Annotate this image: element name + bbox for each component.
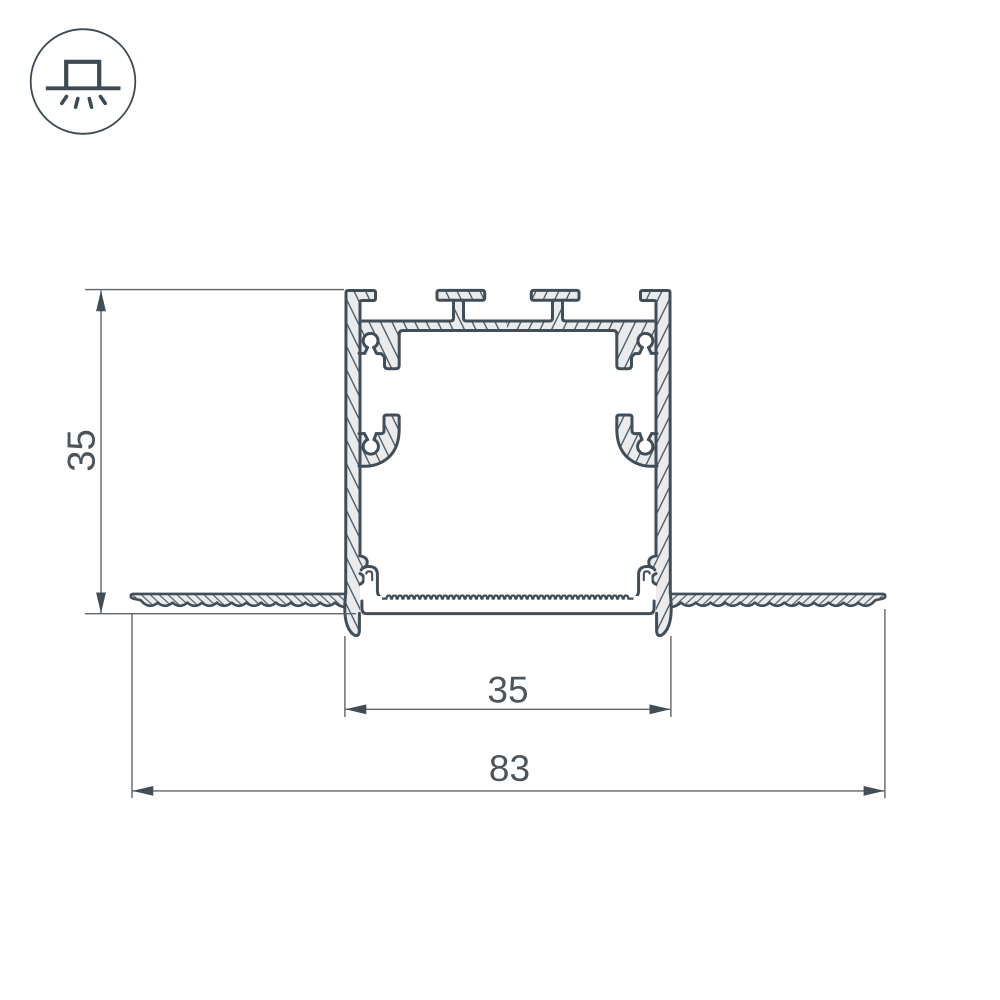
svg-text:83: 83 xyxy=(489,748,530,789)
svg-text:35: 35 xyxy=(487,670,528,711)
svg-text:35: 35 xyxy=(60,429,103,472)
